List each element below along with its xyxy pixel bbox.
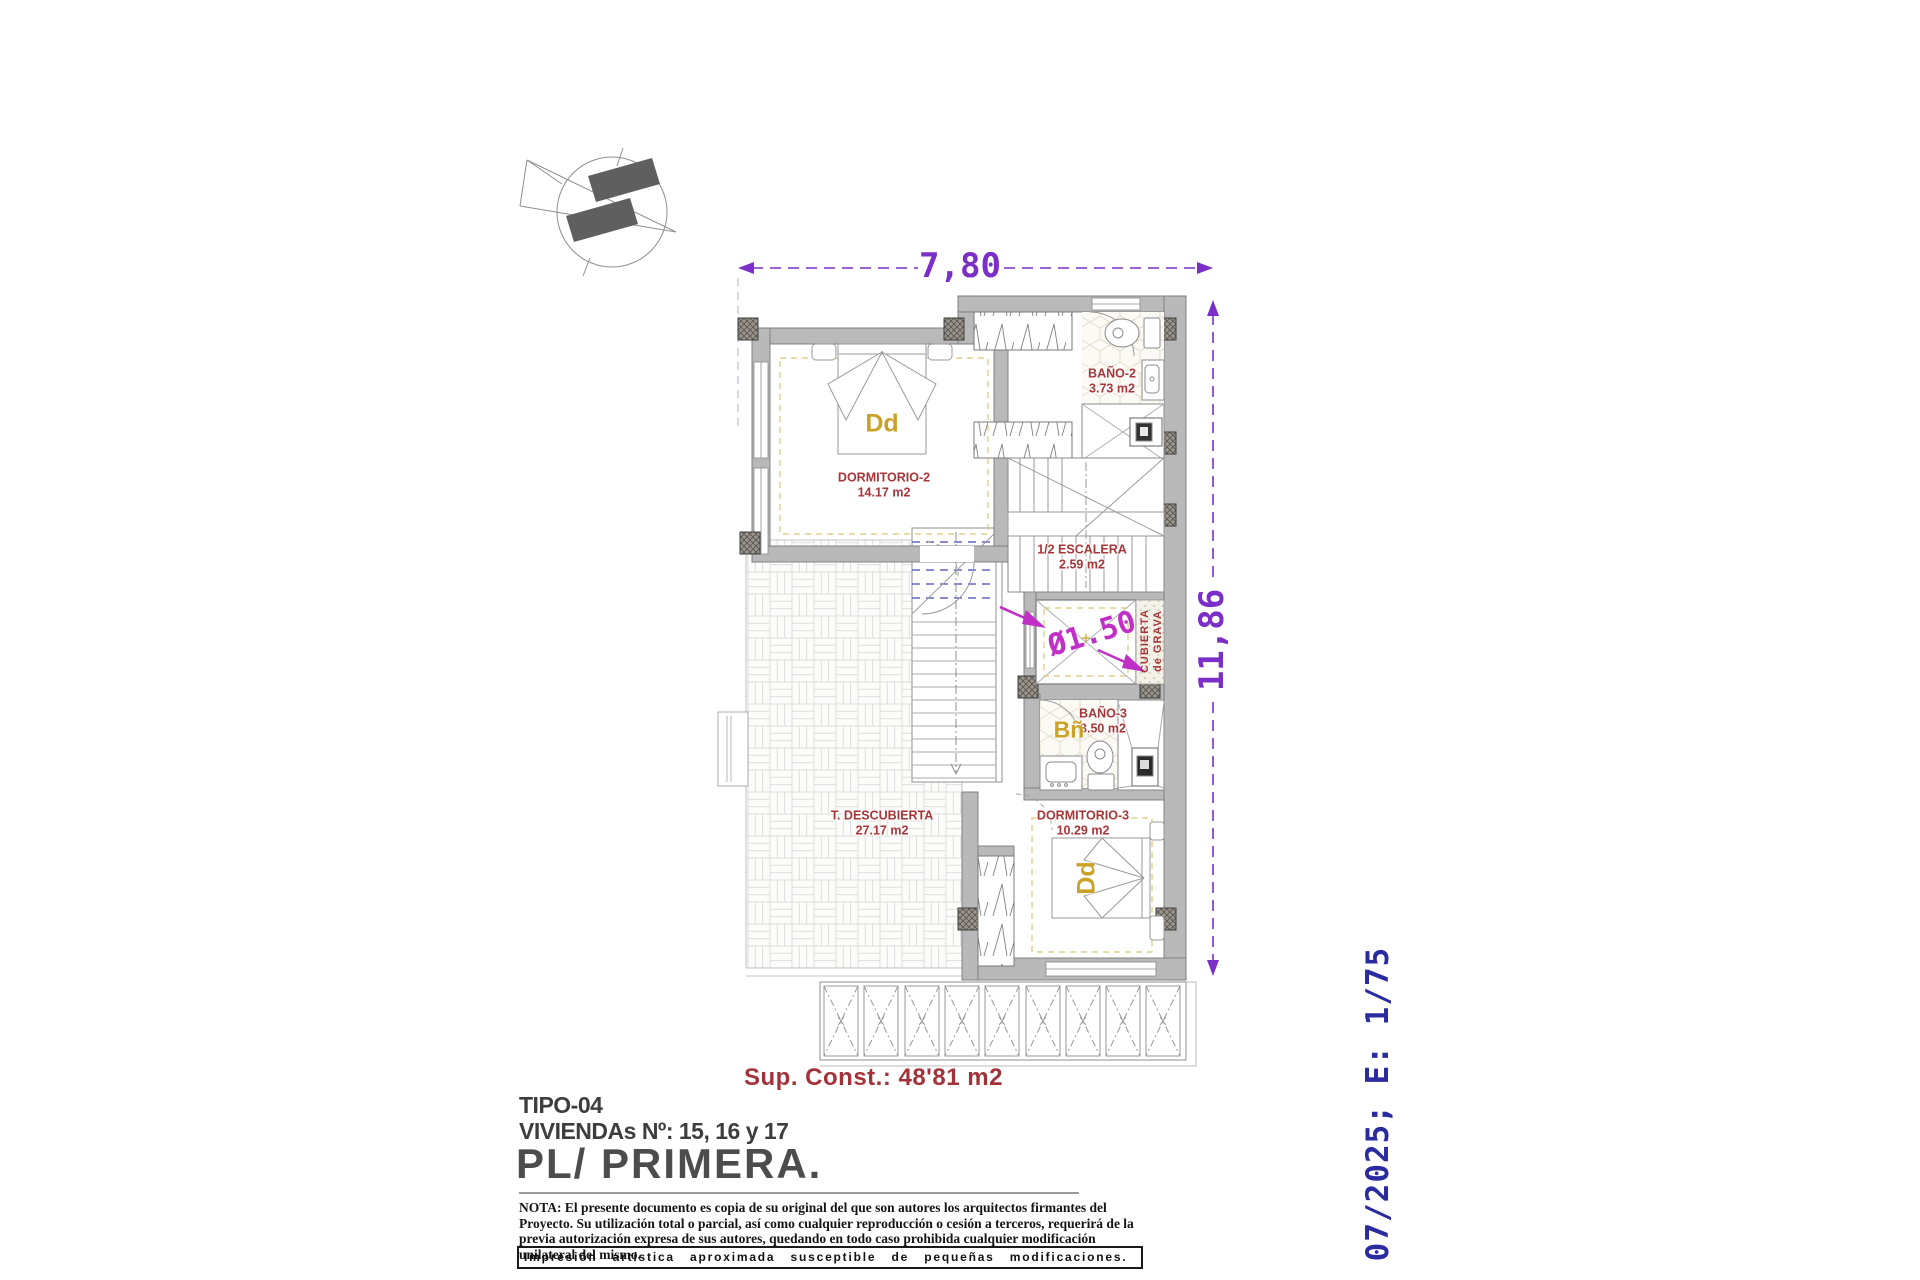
bath-tag-bano-3: Bñ [1054,717,1085,744]
sink-icon [1040,756,1082,790]
gravel-roof-label: CUBIERTA de GRAVA [1139,609,1165,673]
room-label-escalera: 1/2 ESCALERA 2.59 m2 [1037,543,1127,572]
title-divider [519,1192,1079,1194]
room-label-bano-2: BAÑO-2 3.73 m2 [1088,367,1136,396]
terrace-stairs [912,528,1002,782]
date-scale-stamp: 07/2025; E: 1/75 [1360,947,1396,1262]
floor-title: PL/ PRIMERA. [516,1140,822,1188]
sink-icon [1142,360,1164,400]
interior-stairs [1008,458,1164,592]
built-area-label: Sup. Const.: 48'81 m2 [744,1064,1003,1092]
room-label-dormitorio-3: DORMITORIO-3 10.29 m2 [1037,809,1129,838]
dim-height-label: 11,86 [1192,589,1232,691]
bed-tag-dormitorio-3: Dd [1073,861,1102,894]
shower-icon [1082,404,1164,460]
type-label: TIPO-04 [519,1092,602,1119]
toilet-icon [1087,741,1114,790]
room-label-bano-3: BAÑO-3 3.50 m2 [1079,707,1127,736]
pergola-louvers [820,982,1196,1066]
room-label-terraza: T. DESCUBIERTA 27.17 m2 [831,809,934,838]
drawing-sheet: 7,80 11,86 Ø1.50 CUBIERTA de GRAVA DORMI… [0,0,1920,1280]
toilet-icon [1105,318,1160,348]
dim-width-label: 7,80 [919,246,1001,286]
room-label-dormitorio-2: DORMITORIO-2 14.17 m2 [838,471,930,500]
disclaimer-box: Impresión artística aproximada susceptib… [517,1246,1143,1269]
north-arrow-icon [520,148,676,276]
bed-tag-dormitorio-2: Dd [865,410,898,439]
